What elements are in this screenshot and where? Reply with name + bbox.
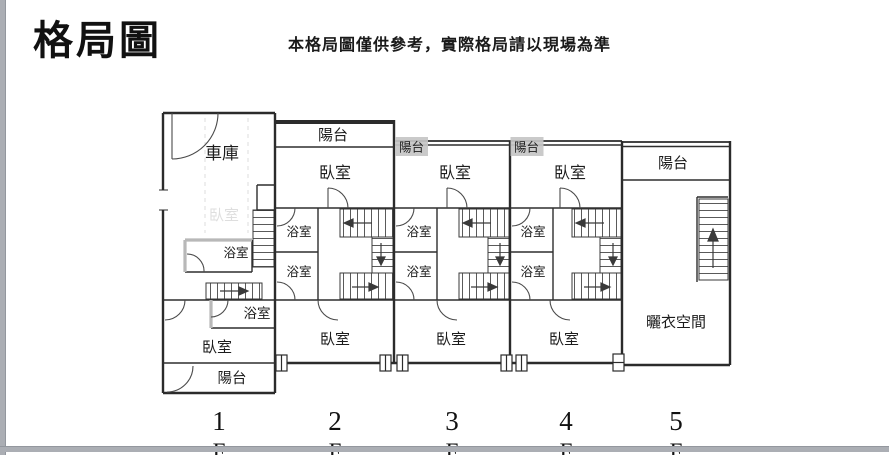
- unit5-drying-space-label: 曬衣空間: [646, 314, 706, 331]
- unit2-bedroom-top-label: 臥室: [319, 164, 351, 182]
- unit5-balcony-label: 陽台: [658, 155, 688, 172]
- unit4-bedroom-top-label: 臥室: [554, 164, 586, 182]
- unit2-balcony-label: 陽台: [318, 127, 348, 144]
- unit2-bath-lower-label: 浴室: [286, 264, 311, 279]
- floor-3-number: 3: [445, 406, 459, 436]
- double-top-walls: [394, 141, 730, 142]
- unit2-bath-upper-label: 浴室: [286, 224, 311, 239]
- unit3-bedroom-top-label: 臥室: [439, 164, 471, 182]
- unit1-garage-label: 車庫: [205, 144, 239, 163]
- unit3-balcony-label: 陽台: [399, 140, 424, 155]
- unit2-bedroom-bottom-label: 臥室: [320, 331, 350, 348]
- unit3-bedroom-bottom-label: 臥室: [436, 331, 466, 348]
- ghost-room-label: 臥室: [209, 207, 239, 224]
- floor-5-number: 5: [669, 406, 683, 436]
- floor-4-number: 4: [559, 406, 573, 436]
- unit4-bath-upper-label: 浴室: [520, 224, 545, 239]
- page-bottom-edge-bar: [0, 446, 889, 452]
- unit4-balcony-label: 陽台: [514, 140, 539, 155]
- unit1-bath-lower-label: 浴室: [244, 305, 271, 321]
- unit1-bedroom-label: 臥室: [202, 339, 232, 356]
- unit1-bath-upper-label: 浴室: [223, 245, 248, 260]
- page-left-edge-bar: [0, 0, 6, 455]
- unit3-bath-upper-label: 浴室: [406, 224, 431, 239]
- unit4-bedroom-bottom-label: 臥室: [549, 331, 579, 348]
- left-wall-window: [159, 190, 168, 210]
- unit4-bath-lower-label: 浴室: [520, 264, 545, 279]
- unit1-balcony-label: 陽台: [218, 370, 247, 387]
- floor-1-number: 1: [212, 406, 226, 436]
- garage-guide-lines: 臥室: [205, 118, 248, 233]
- unit3-bath-lower-label: 浴室: [406, 264, 431, 279]
- floor-2-number: 2: [328, 406, 342, 436]
- floor-plan: 臥室: [0, 0, 889, 455]
